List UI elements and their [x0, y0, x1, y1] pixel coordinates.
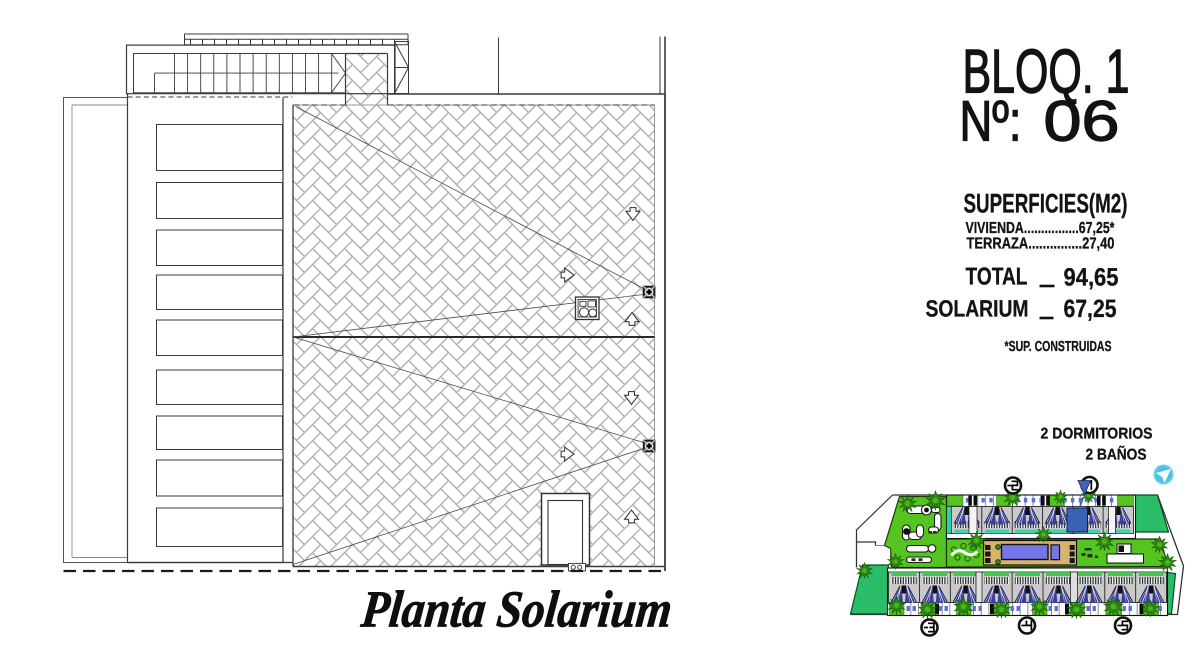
svg-text:TERRAZA...............27,40: TERRAZA...............27,40: [967, 236, 1115, 253]
svg-text:2 BAÑOS: 2 BAÑOS: [1086, 446, 1147, 464]
svg-text:TOTAL: TOTAL: [966, 264, 1028, 291]
svg-text:Nº:: Nº:: [960, 90, 1022, 154]
svg-text:94,65: 94,65: [1064, 264, 1119, 292]
svg-text:67,25: 67,25: [1064, 295, 1117, 323]
svg-text:SUPERFICIES(M2): SUPERFICIES(M2): [964, 189, 1128, 219]
svg-text:VIVIENDA................67,25*: VIVIENDA................67,25*: [966, 220, 1116, 237]
svg-text:*SUP. CONSTRUIDAS: *SUP. CONSTRUIDAS: [1005, 339, 1112, 355]
svg-text:SOLARIUM: SOLARIUM: [926, 296, 1029, 322]
svg-text:06: 06: [1044, 90, 1120, 154]
svg-text:Planta Solarium: Planta Solarium: [358, 582, 675, 639]
svg-text:2 DORMITORIOS: 2 DORMITORIOS: [1041, 426, 1153, 443]
